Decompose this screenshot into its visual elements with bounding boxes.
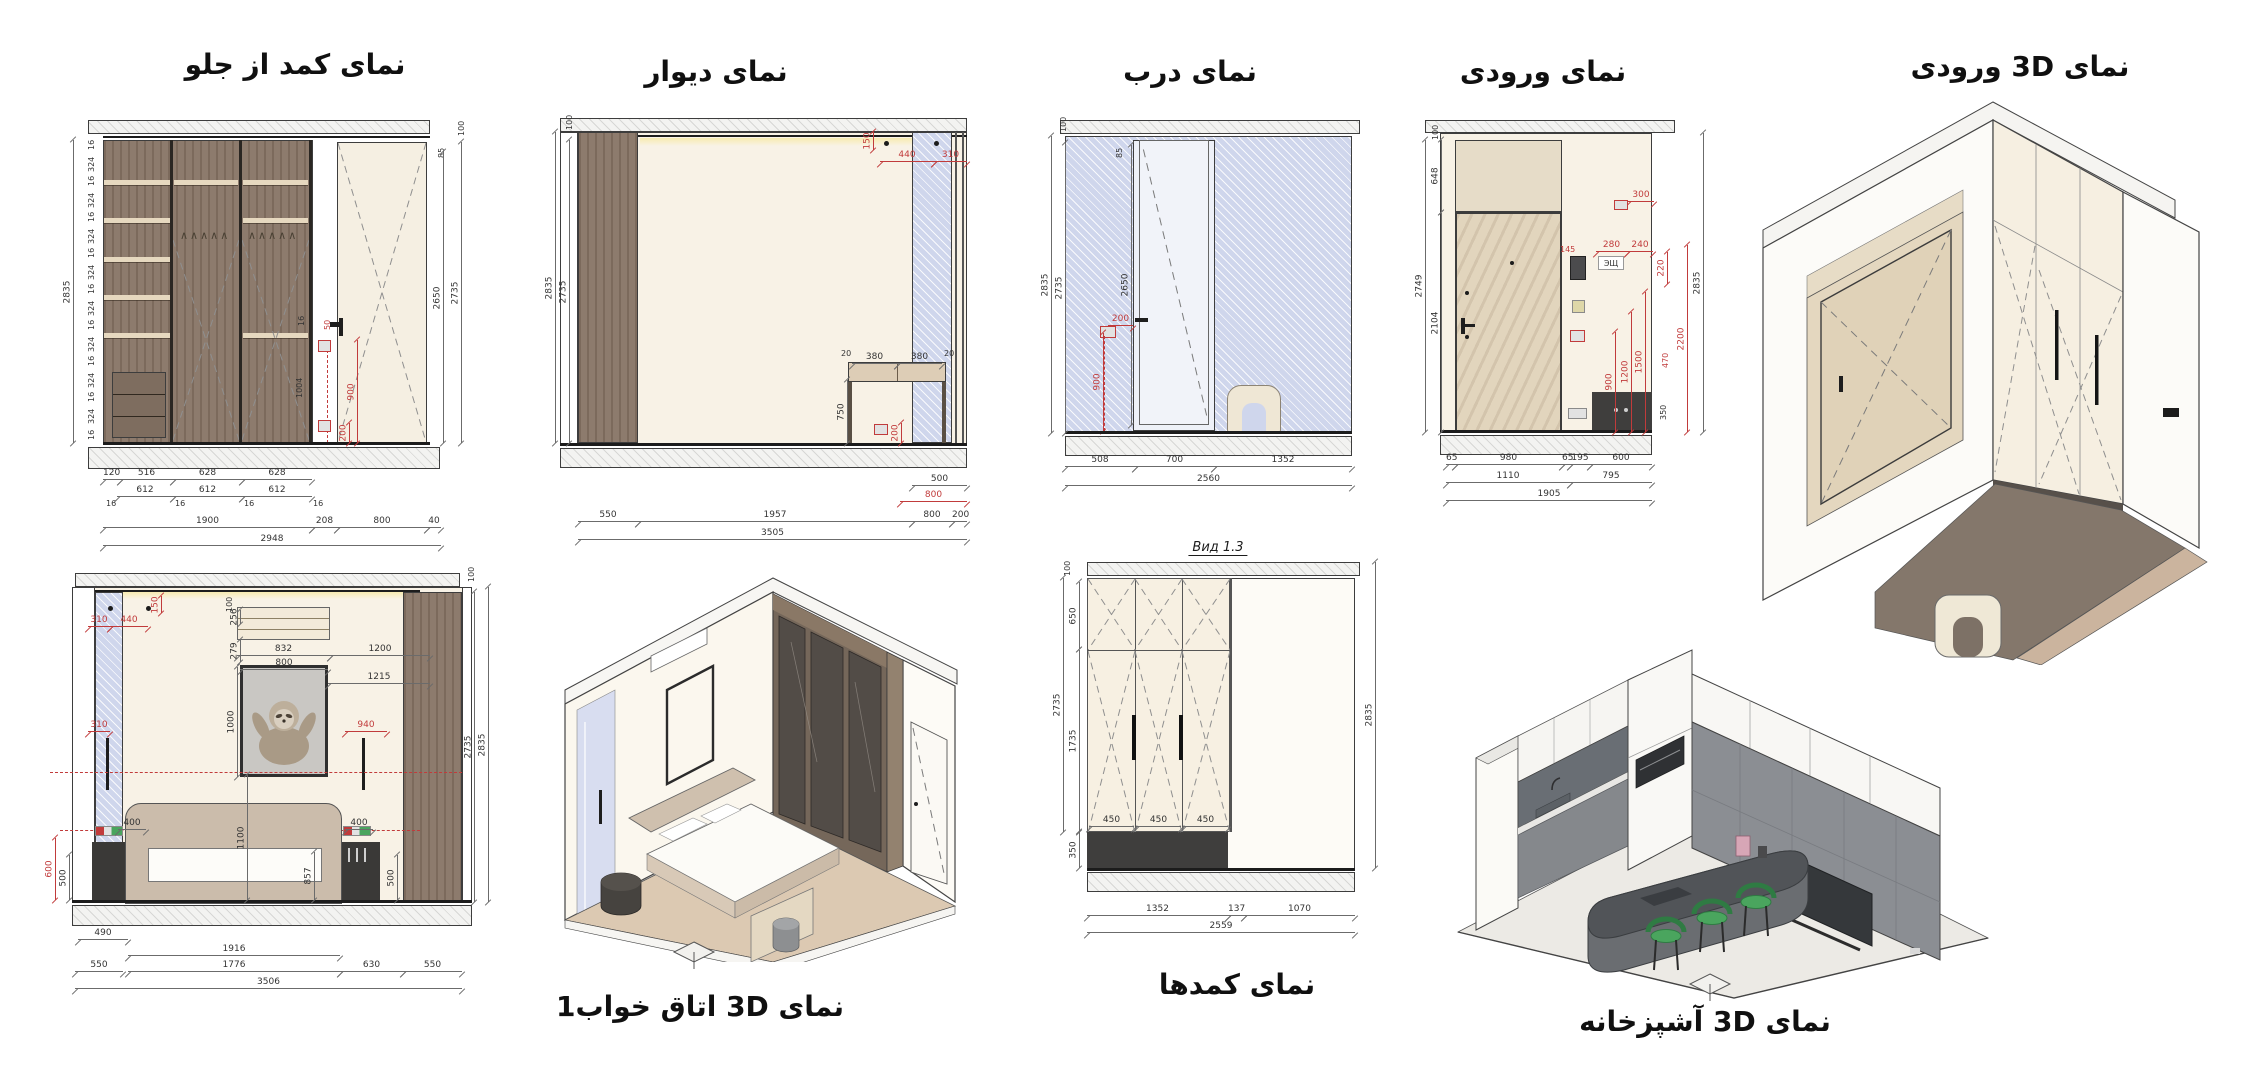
ceiling-line (103, 136, 430, 138)
over-door-panel (1455, 140, 1562, 212)
dim-2835: 2835 (1040, 136, 1052, 433)
dim-516: 516 (120, 468, 173, 480)
dim-2735: 2735 (1054, 143, 1066, 433)
dim-1100: 1100 (236, 775, 248, 900)
dim-324: 324 (88, 409, 96, 424)
dim-280: 280 (1596, 240, 1627, 252)
dim-200: 200 (890, 423, 902, 443)
dim-857: 857 (303, 852, 315, 900)
dim-400: 400 (345, 818, 373, 830)
entrance-door (1455, 212, 1562, 432)
dim-16: 16 (88, 212, 96, 222)
floor-slab (1087, 872, 1355, 892)
dim-208: 208 (312, 516, 337, 528)
dim-1200: 1200 (1620, 312, 1632, 432)
title-closet-front: نمای کمد از جلو (185, 48, 406, 81)
dim-2560: 2560 (1065, 474, 1352, 486)
socket (1614, 200, 1628, 210)
wardrobe-divider (309, 140, 312, 443)
ceiling-slab (1060, 120, 1360, 134)
floor-slab (88, 447, 440, 469)
peephole (1510, 261, 1514, 265)
dim-628: 628 (242, 468, 312, 480)
dim-100: 100 (458, 121, 466, 136)
dim-1900: 1900 (103, 516, 312, 528)
dim-16: 16 (88, 430, 96, 440)
dim-100: 100 (1432, 125, 1440, 140)
bedroom-3d-isometric (555, 572, 990, 962)
dim-2948: 2948 (103, 534, 441, 546)
dim-310: 310 (88, 615, 110, 627)
shelf (104, 257, 170, 262)
ceiling-slab (88, 120, 430, 134)
dim-1500: 1500 (1634, 292, 1646, 432)
view-cube-icon (672, 940, 716, 970)
electrical-panel-label: ЭЩ (1598, 256, 1624, 270)
entrance-3d-isometric (1755, 80, 2235, 665)
dim-490: 490 (78, 928, 128, 940)
led-strip (95, 592, 420, 599)
dim-450: 450 (1183, 815, 1228, 827)
dim-65: 65 (1562, 453, 1570, 465)
dim-200: 200 (338, 423, 350, 443)
dim-350: 350 (1660, 405, 1668, 420)
dim-220: 220 (1656, 252, 1668, 284)
dim-700: 700 (1135, 455, 1214, 467)
coffee-machine (1736, 836, 1750, 856)
dim-324: 324 (88, 229, 96, 244)
door-swing-x (242, 240, 309, 440)
dim-total-height: 2835 (62, 140, 74, 443)
dim-1200: 1200 (330, 644, 430, 656)
dim-612: 612 (242, 485, 312, 497)
dim-16: 16 (88, 140, 96, 150)
dim-750: 750 (836, 380, 848, 443)
socket (874, 424, 888, 435)
nightstand (340, 842, 380, 902)
door-swing-x (173, 240, 239, 440)
dim-500: 500 (912, 474, 967, 486)
dim-612: 612 (173, 485, 242, 497)
dim-440: 440 (880, 150, 934, 162)
dim-324: 324 (88, 157, 96, 172)
dim-16: 16 (175, 500, 185, 508)
dim-16: 16 (88, 392, 96, 402)
bed-mattress (148, 848, 322, 882)
kettle (1758, 846, 1767, 858)
dim-350: 350 (1068, 832, 1080, 868)
floor-slab (560, 448, 967, 468)
dim-2650: 2650 (1120, 145, 1132, 425)
dim-2835: 2835 (477, 587, 489, 902)
switch (1572, 300, 1585, 313)
dim-2749: 2749 (1414, 140, 1426, 432)
dim-1352: 1352 (1214, 455, 1352, 467)
dim-400: 400 (118, 818, 146, 830)
dim-550: 550 (403, 960, 462, 972)
dim-16: 16 (298, 316, 306, 326)
dim-137: 137 (1228, 904, 1244, 916)
dim-100: 100 (468, 567, 476, 582)
title-closets-view: نمای کمدها (1159, 968, 1315, 1001)
view-subtitle: Вид 1.3 (1188, 540, 1247, 556)
dim-300: 300 (1628, 190, 1654, 202)
dim-16: 16 (88, 248, 96, 258)
dim-1957: 1957 (638, 510, 912, 522)
dim-600: 600 (44, 838, 56, 900)
dim-795: 795 (1570, 471, 1652, 483)
door-handle (1135, 318, 1148, 322)
dim-1110: 1110 (1446, 471, 1570, 483)
dim-500: 500 (58, 855, 70, 900)
dim-20: 20 (841, 350, 851, 358)
ceiling-slab (75, 573, 460, 587)
closet-base (1087, 832, 1228, 868)
dim-100: 100 (1060, 117, 1068, 132)
ceiling-slab (1425, 120, 1675, 133)
dim-16: 16 (106, 500, 116, 508)
dim-508: 508 (1065, 455, 1135, 467)
dim-3506: 3506 (75, 977, 462, 989)
shelf (104, 295, 170, 300)
dim-648: 648 (1430, 140, 1442, 212)
base-line (560, 443, 967, 446)
dim-324: 324 (88, 193, 96, 208)
base-line (1065, 431, 1352, 434)
dim-2835: 2835 (1692, 133, 1704, 432)
dim-40: 40 (427, 516, 441, 528)
base-line (1087, 868, 1355, 871)
dim-612: 612 (117, 485, 173, 497)
dim-1735: 1735 (1068, 650, 1080, 832)
dim-550: 550 (578, 510, 638, 522)
dim-2735: 2735 (450, 142, 462, 443)
wall-shelves (237, 607, 330, 640)
led-strip (640, 138, 947, 146)
dim-450: 450 (1136, 815, 1181, 827)
dim-2559: 2559 (1087, 921, 1355, 933)
socket (318, 420, 331, 432)
glass-strip (912, 132, 952, 443)
wall-edge-line (955, 132, 957, 443)
sloth-artwork (243, 668, 325, 774)
door-handle (339, 318, 343, 336)
socket (1570, 330, 1585, 342)
dim-2835: 2835 (544, 132, 556, 443)
dim-980: 980 (1455, 453, 1562, 465)
dim-310: 310 (934, 150, 967, 162)
wood-panel (403, 592, 462, 902)
dim-1776: 1776 (128, 960, 340, 972)
dim-500: 500 (386, 855, 398, 900)
double-socket (1568, 408, 1587, 419)
closet-front (1087, 578, 1230, 832)
dim-324: 324 (88, 301, 96, 316)
spot-light (108, 606, 113, 611)
dim-2200: 2200 (1676, 245, 1688, 432)
closet-handle (1179, 715, 1183, 760)
dim-16: 16 (88, 320, 96, 330)
dim-2735: 2735 (463, 592, 475, 902)
dim-120: 120 (103, 468, 120, 480)
shelf (104, 333, 170, 338)
wall-edge-line (962, 132, 964, 443)
dim-832: 832 (237, 644, 330, 656)
wood-panel (578, 132, 638, 443)
dim-324: 324 (88, 265, 96, 280)
socket (318, 340, 331, 352)
dim-1215: 1215 (328, 672, 430, 684)
dim-628: 628 (173, 468, 242, 480)
spot-light (884, 141, 889, 146)
floor-slab (1065, 436, 1352, 456)
dim-1004: 1004 (296, 378, 304, 398)
title-entrance-3d: نمای 3D ورودی (1911, 50, 2130, 83)
dim-3505: 3505 (578, 528, 967, 540)
dim-240: 240 (1627, 240, 1653, 252)
dim-550: 550 (75, 960, 123, 972)
dim-1905: 1905 (1446, 489, 1652, 501)
dim-16: 16 (244, 500, 254, 508)
dim-150: 150 (150, 596, 162, 613)
dim-2835: 2835 (1364, 562, 1376, 868)
dim-600: 600 (1590, 453, 1652, 465)
dim-256: 256 (229, 610, 241, 624)
dim-50: 50 (324, 320, 332, 330)
dim-1000: 1000 (226, 667, 238, 777)
artwork-frame (240, 665, 328, 777)
shelf (243, 180, 308, 185)
dim-195: 195 (1570, 453, 1590, 465)
dim-16: 16 (88, 356, 96, 366)
title-wall-view: نمای دیوار (644, 55, 787, 88)
title-door-view: نمای درب (1123, 55, 1257, 88)
floor-slab (72, 905, 472, 926)
dim-440: 440 (110, 615, 148, 627)
nightstand (92, 842, 125, 902)
title-bedroom-3d: نمای 3D اتاق خواب1 (556, 990, 844, 1023)
dim-145: 145 (1560, 246, 1575, 254)
dim-100: 100 (566, 115, 574, 130)
dim-200: 200 (1108, 314, 1133, 326)
dim-380: 380 (897, 352, 942, 364)
wall-divider (1230, 578, 1232, 832)
shelf (104, 180, 170, 185)
hinge (1465, 291, 1469, 295)
dim-380: 380 (852, 352, 897, 364)
dim-20: 20 (944, 350, 954, 358)
dim-2104: 2104 (1430, 213, 1442, 432)
dim-2735: 2735 (1052, 578, 1064, 832)
ceiling-slab (1087, 562, 1360, 576)
desk-leg (848, 382, 852, 443)
socket-axis-line (1104, 336, 1105, 431)
hinge (1465, 335, 1469, 339)
dim-470: 470 (1662, 353, 1670, 368)
desk-leg (942, 382, 946, 443)
dim-650: 650 (1068, 582, 1080, 649)
dim-2650: 2650 (432, 152, 444, 443)
dim-800: 800 (240, 658, 328, 670)
closet-handle (1132, 715, 1136, 760)
dim-150: 150 (862, 132, 874, 150)
dim-65: 65 (1446, 453, 1455, 465)
dim-900: 900 (1092, 333, 1104, 431)
title-kitchen-3d: نمای 3D آشپزخانه (1579, 1005, 1831, 1038)
dim-800: 800 (900, 490, 967, 502)
dim-200: 200 (952, 510, 967, 522)
kitchen-3d-isometric (1440, 640, 2010, 1000)
ceiling-slab (560, 118, 967, 132)
drawing-sheet: نمای کمد از جلو نمای دیوار نمای درب نمای… (0, 0, 2241, 1080)
pet-bed-arch (1227, 385, 1281, 434)
axis-line (50, 772, 462, 773)
dim-2735: 2735 (558, 140, 570, 443)
dim-310: 310 (88, 720, 110, 732)
base-line (103, 442, 430, 445)
dim-450: 450 (1089, 815, 1134, 827)
shelf (104, 218, 170, 223)
dim-324: 324 (88, 373, 96, 388)
dim-800: 800 (337, 516, 427, 528)
dim-16: 16 (88, 176, 96, 186)
dim-324: 324 (88, 337, 96, 352)
door-leaf (1139, 140, 1209, 425)
dim-900: 900 (1604, 332, 1616, 432)
video-intercom (1570, 256, 1586, 280)
wall-sconce (362, 738, 365, 790)
dim-1070: 1070 (1244, 904, 1355, 916)
dim-630: 630 (340, 960, 403, 972)
dim-16: 16 (313, 500, 323, 508)
dim-1916: 1916 (128, 944, 340, 956)
wall-sconce (106, 738, 109, 790)
shelf (243, 218, 308, 223)
base-line (72, 900, 472, 903)
dim-16: 16 (88, 284, 96, 294)
spot-light (934, 141, 939, 146)
view-cube-icon (1688, 972, 1732, 1002)
door-handle-bar (1463, 324, 1475, 327)
shelf (174, 180, 238, 185)
floor-slab (1440, 435, 1652, 455)
dim-940: 940 (345, 720, 387, 732)
title-entrance-view: نمای ورودی (1460, 55, 1626, 88)
dim-1352: 1352 (1087, 904, 1228, 916)
drawer-stack (112, 372, 166, 438)
dim-800: 800 (912, 510, 952, 522)
